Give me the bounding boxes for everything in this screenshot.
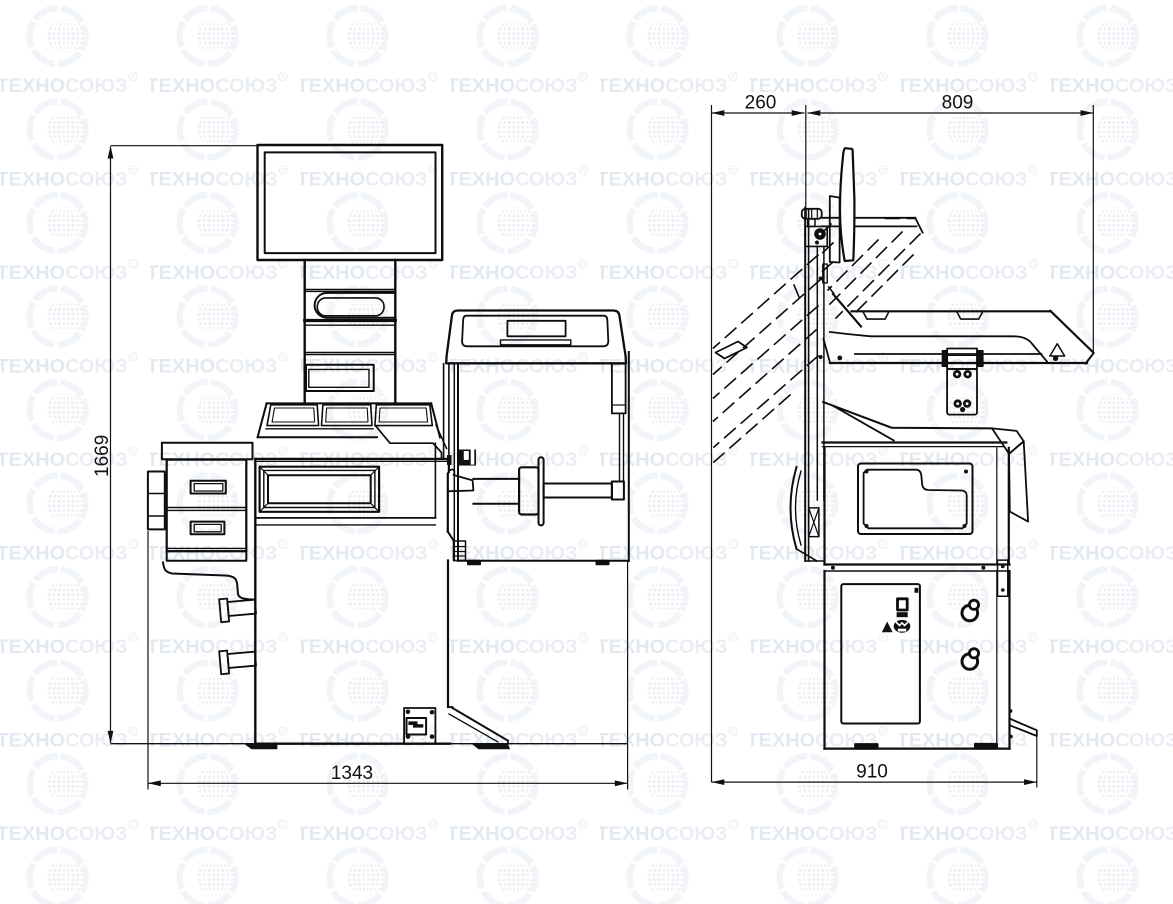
svg-text:910: 910 [856,762,888,783]
svg-text:260: 260 [745,93,777,114]
svg-text:1669: 1669 [92,435,113,477]
svg-text:1343: 1343 [331,763,373,784]
svg-text:809: 809 [942,93,974,114]
